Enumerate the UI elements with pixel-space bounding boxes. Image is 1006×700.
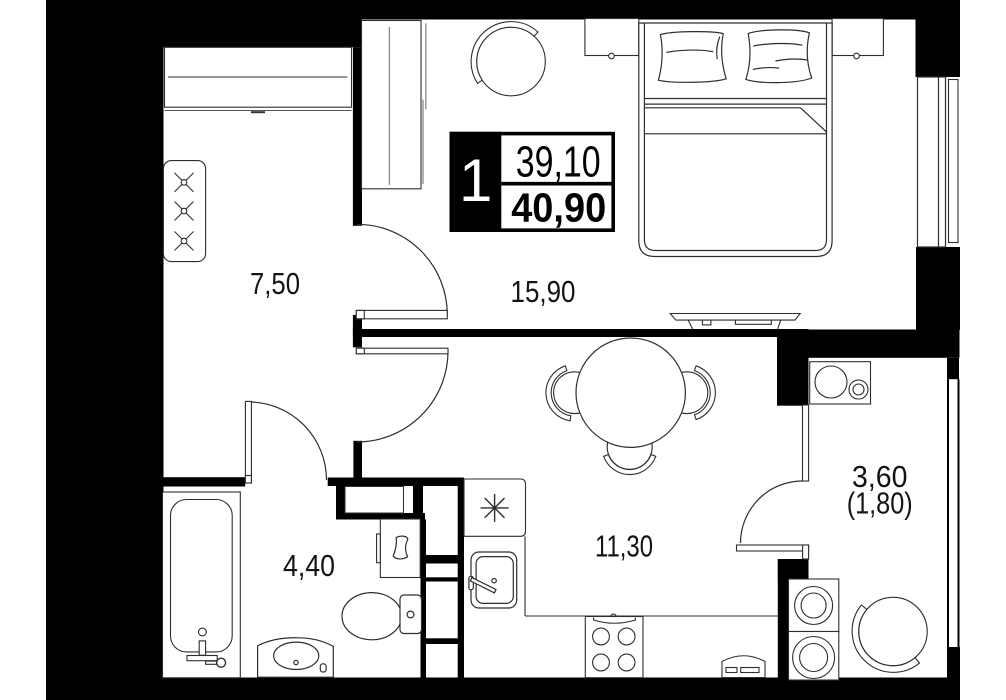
svg-text:15,90: 15,90 (511, 274, 576, 309)
svg-text:40,90: 40,90 (511, 185, 606, 231)
svg-text:(1,80): (1,80) (847, 486, 913, 521)
svg-text:7,50: 7,50 (250, 266, 300, 301)
svg-text:4,40: 4,40 (283, 548, 335, 583)
svg-text:11,30: 11,30 (595, 529, 653, 564)
svg-text:1: 1 (459, 147, 492, 214)
svg-text:39,10: 39,10 (516, 138, 601, 187)
